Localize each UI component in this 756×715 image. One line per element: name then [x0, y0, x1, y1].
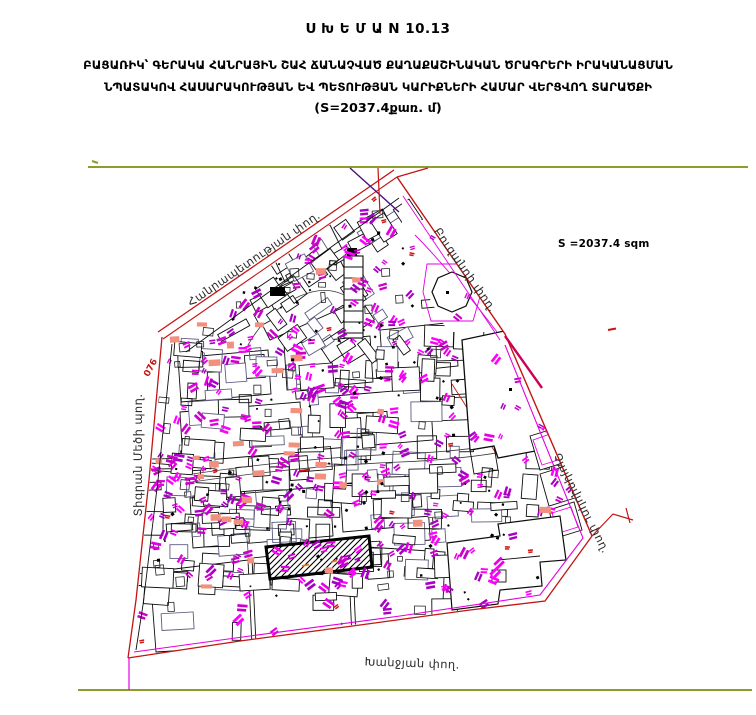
area-label: S =2037.4 sqm [558, 238, 650, 250]
ladder-building [344, 256, 363, 338]
header: Ս Խ Ե Մ Ա N 10.13 ԲԱՑԱՌԻԿ՝ ԳԵՐԱԿԱ ՀԱՆՐԱՅ… [0, 0, 756, 150]
boundary-marker-076: 076 [142, 357, 160, 378]
subtitle-line-3: (S=2037.4քառ. մ) [0, 98, 756, 120]
top-cross-line [350, 168, 399, 212]
subtitle-line-1: ԲԱՑԱՌԻԿ՝ ԳԵՐԱԿԱ ՀԱՆՐԱՅԻՆ ՇԱՀ ՃԱՆԱՉՎԱԾ ՔԱ… [0, 55, 756, 77]
frame-tick [92, 161, 98, 163]
block-interior [136, 192, 582, 652]
street-label-tigran-mets: Տիգրան Մեծի պող. [131, 394, 145, 517]
solid-block [270, 287, 285, 296]
street-label-khanjyan: Խանջյան փող. [364, 654, 459, 671]
cadastral-map: Հանրապետության փող. Բուզանդի փող. Տիգրան… [0, 150, 756, 715]
page-title: Ս Խ Ե Մ Ա N 10.13 [0, 0, 756, 37]
subtitle-line-2: ՆՊԱՏԱԿՈՎ ՀԱՍԱՐԱԿՈՒԹՅԱՆ ԵՎ ՊԵՏՈՒԹՅԱՆ ԿԱՐԻ… [0, 77, 756, 99]
